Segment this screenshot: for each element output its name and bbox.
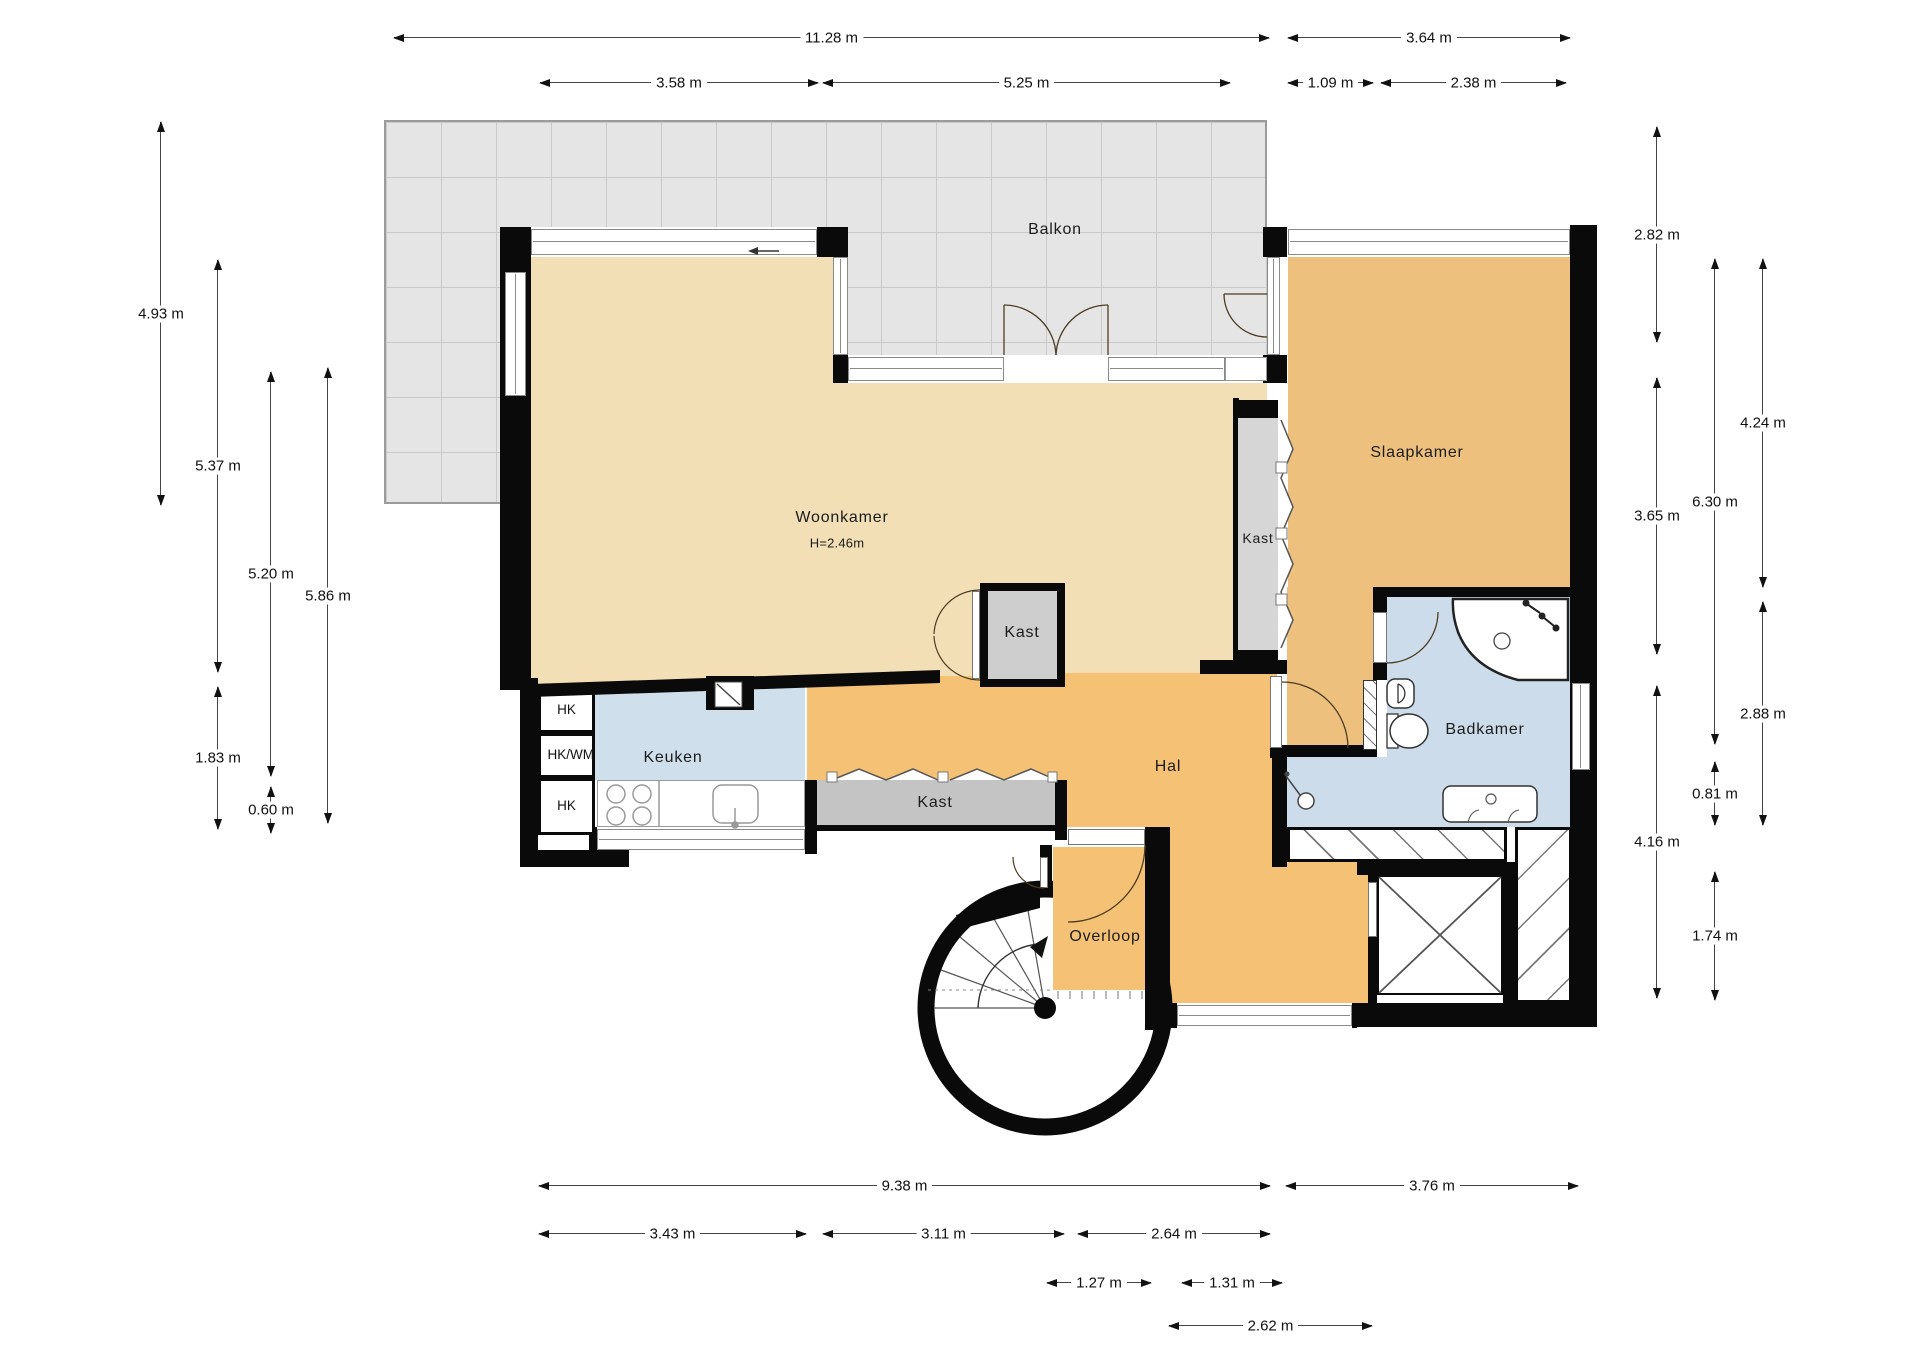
arrow-down-icon: [1711, 815, 1719, 826]
arrow-left-icon: [1046, 1279, 1057, 1287]
folding-door-hinge: [938, 772, 948, 782]
dimension-label: 9.38 m: [877, 1178, 933, 1195]
dimension-line: 3.58 m: [540, 82, 818, 83]
dimension-line: 1.83 m: [217, 687, 218, 829]
folding-door-hinge: [1276, 594, 1287, 605]
dimension-line: 9.38 m: [539, 1185, 1270, 1186]
dimension-label: 5.37 m: [190, 458, 246, 475]
folding-door-hinge: [1276, 462, 1287, 473]
dimension-label: 5.25 m: [999, 75, 1055, 92]
arrow-right-icon: [808, 79, 819, 87]
arrow-right-icon: [1220, 79, 1231, 87]
arrow-right-icon: [1141, 1279, 1152, 1287]
dimension-line: 4.24 m: [1762, 259, 1763, 587]
dimension-line: 1.09 m: [1288, 82, 1373, 83]
arrow-down-icon: [267, 823, 275, 834]
arrow-down-icon: [1711, 734, 1719, 745]
balustrade-ticks: [1058, 991, 1142, 999]
arrow-right-icon: [1260, 1230, 1271, 1238]
arrow-left-icon: [393, 34, 404, 42]
dimension-line: 1.27 m: [1047, 1282, 1151, 1283]
door-arc-overloop: [1068, 845, 1145, 922]
arrow-down-icon: [214, 819, 222, 830]
dimension-label: 0.60 m: [243, 802, 299, 819]
dimension-label: 3.76 m: [1404, 1178, 1460, 1195]
dimension-label: 6.30 m: [1687, 493, 1743, 510]
arrow-up-icon: [1711, 258, 1719, 269]
dimension-line: 1.31 m: [1182, 1282, 1282, 1283]
dimension-label: 3.58 m: [651, 75, 707, 92]
arrow-down-icon: [324, 813, 332, 824]
wall: [956, 894, 1040, 929]
arrow-down-icon: [1759, 815, 1767, 826]
floor-plan-canvas: HK HK/WM HK: [0, 0, 1920, 1358]
arrow-up-icon: [1653, 377, 1661, 388]
stove-icon: [607, 781, 659, 826]
dimension-line: 11.28 m: [394, 37, 1269, 38]
arrow-left-icon: [1181, 1279, 1192, 1287]
door-arc-stair: [1013, 857, 1044, 888]
door-arc-balcony-single: [1224, 294, 1267, 337]
fixtures-layer: [0, 0, 1920, 1358]
dimension-line: 5.86 m: [327, 368, 328, 823]
arrow-right-icon: [1556, 79, 1567, 87]
arrow-up-icon: [267, 371, 275, 382]
arrow-right-icon: [1363, 79, 1374, 87]
dimension-line: 3.43 m: [539, 1233, 806, 1234]
door-arc-closet: [934, 590, 980, 680]
sliding-door-arrow-icon: [748, 247, 779, 255]
arrow-down-icon: [1653, 332, 1661, 343]
washbasin-icon: [1387, 714, 1428, 748]
folding-door-hinge: [1276, 528, 1287, 539]
dimension-line: 4.16 m: [1656, 686, 1657, 998]
dimension-label: 3.11 m: [916, 1226, 971, 1243]
dimension-label: 0.81 m: [1687, 785, 1743, 802]
dimension-line: 6.30 m: [1714, 259, 1715, 744]
dimension-line: 5.37 m: [217, 260, 218, 672]
dimension-label: 5.20 m: [243, 566, 299, 583]
dimension-line: 5.20 m: [270, 372, 271, 776]
dimension-line: 3.76 m: [1286, 1185, 1578, 1186]
dimension-line: 3.11 m: [823, 1233, 1064, 1234]
dimension-label: 1.83 m: [190, 750, 246, 767]
arrow-down-icon: [1653, 988, 1661, 999]
arrow-down-icon: [214, 662, 222, 673]
dimension-label: 3.43 m: [645, 1226, 701, 1243]
dimension-label: 2.62 m: [1243, 1318, 1299, 1335]
arrow-right-icon: [1259, 34, 1270, 42]
room-label-kast-hal: Kast: [917, 794, 952, 812]
room-label-kast-slaapkamer: Kast: [1242, 530, 1273, 546]
dimension-line: 2.62 m: [1169, 1325, 1372, 1326]
dimension-label: 2.88 m: [1735, 705, 1791, 722]
room-label-keuken: Keuken: [643, 749, 702, 767]
room-label-overloop: Overloop: [1069, 928, 1140, 946]
elevator-cross-icon: [1379, 877, 1501, 993]
room-label-balkon: Balkon: [1028, 221, 1082, 239]
dimension-line: 3.65 m: [1656, 378, 1657, 654]
arrow-down-icon: [1653, 644, 1661, 655]
arrow-left-icon: [538, 1230, 549, 1238]
arrow-right-icon: [1260, 1182, 1271, 1190]
dimension-line: 1.74 m: [1714, 872, 1715, 1000]
dimension-label: 2.82 m: [1629, 226, 1685, 243]
arrow-right-icon: [796, 1230, 807, 1238]
arrow-down-icon: [267, 766, 275, 777]
arrow-right-icon: [1272, 1279, 1283, 1287]
arrow-left-icon: [1380, 79, 1391, 87]
arrow-right-icon: [1560, 34, 1571, 42]
room-label-badkamer: Badkamer: [1445, 721, 1524, 739]
dimension-label: 1.31 m: [1204, 1275, 1260, 1292]
arrow-left-icon: [538, 1182, 549, 1190]
dimension-label: 1.27 m: [1071, 1275, 1127, 1292]
arrow-down-icon: [157, 495, 165, 506]
folding-door-hinge: [827, 772, 837, 782]
dimension-label: 4.93 m: [133, 305, 189, 322]
door-arc-balcony-double: [1004, 305, 1108, 355]
dimension-line: 4.93 m: [160, 122, 161, 505]
door-arc-badkamer: [1387, 612, 1438, 663]
arrow-up-icon: [1653, 126, 1661, 137]
dimension-line: 5.25 m: [823, 82, 1230, 83]
dimension-label: 1.74 m: [1687, 928, 1743, 945]
arrow-down-icon: [1711, 990, 1719, 1001]
arrow-down-icon: [1759, 577, 1767, 588]
dimension-line: 2.88 m: [1762, 602, 1763, 825]
arrow-up-icon: [1653, 685, 1661, 696]
arrow-up-icon: [157, 121, 165, 132]
arrow-right-icon: [1568, 1182, 1579, 1190]
arrow-up-icon: [214, 686, 222, 697]
folding-door-hinge: [1048, 772, 1057, 782]
arrow-right-icon: [1054, 1230, 1065, 1238]
arrow-up-icon: [324, 367, 332, 378]
vanity-icon: [1443, 786, 1537, 822]
room-label-hal: Hal: [1155, 758, 1181, 776]
arrow-left-icon: [1287, 34, 1298, 42]
arrow-up-icon: [214, 259, 222, 270]
radiator-icon: [1285, 772, 1315, 810]
dimension-label: 3.64 m: [1401, 30, 1457, 47]
dimension-line: 0.60 m: [270, 787, 271, 833]
folding-door-hal-closet: [832, 769, 938, 780]
room-label-woonkamer: Woonkamer: [795, 509, 888, 527]
door-arc-slaapkamer: [1282, 682, 1348, 748]
arrow-left-icon: [822, 1230, 833, 1238]
arrow-left-icon: [1168, 1322, 1179, 1330]
dimension-label: 2.38 m: [1446, 75, 1502, 92]
sink-icon: [713, 785, 758, 828]
dimension-label: 5.86 m: [300, 587, 356, 604]
toilet-icon: [1387, 679, 1414, 708]
room-label-kast-woonkamer: Kast: [1004, 624, 1039, 642]
dimension-line: 0.81 m: [1714, 762, 1715, 825]
dimension-label: 4.16 m: [1629, 834, 1685, 851]
dimension-line: 2.38 m: [1381, 82, 1566, 83]
folding-door-hal-closet: [950, 769, 1056, 780]
arrow-left-icon: [539, 79, 550, 87]
dimension-line: 2.64 m: [1078, 1233, 1270, 1234]
dimension-label: 3.65 m: [1629, 508, 1685, 525]
dimension-label: 1.09 m: [1303, 75, 1359, 92]
arrow-up-icon: [267, 786, 275, 797]
arrow-left-icon: [1287, 79, 1298, 87]
arrow-up-icon: [1711, 871, 1719, 882]
room-height-woonkamer: H=2.46m: [810, 536, 865, 551]
dimension-label: 11.28 m: [800, 30, 863, 47]
arrow-left-icon: [1077, 1230, 1088, 1238]
arrow-left-icon: [822, 79, 833, 87]
arrow-left-icon: [1285, 1182, 1296, 1190]
dimension-line: 3.64 m: [1288, 37, 1570, 38]
room-label-slaapkamer: Slaapkamer: [1370, 444, 1463, 462]
arrow-up-icon: [1759, 258, 1767, 269]
dimension-line: 2.82 m: [1656, 127, 1657, 342]
dimension-label: 2.64 m: [1146, 1226, 1202, 1243]
arrow-right-icon: [1362, 1322, 1373, 1330]
bathtub-icon: [1453, 599, 1568, 680]
arrow-up-icon: [1711, 761, 1719, 772]
dimension-label: 4.24 m: [1735, 415, 1791, 432]
arrow-up-icon: [1759, 601, 1767, 612]
